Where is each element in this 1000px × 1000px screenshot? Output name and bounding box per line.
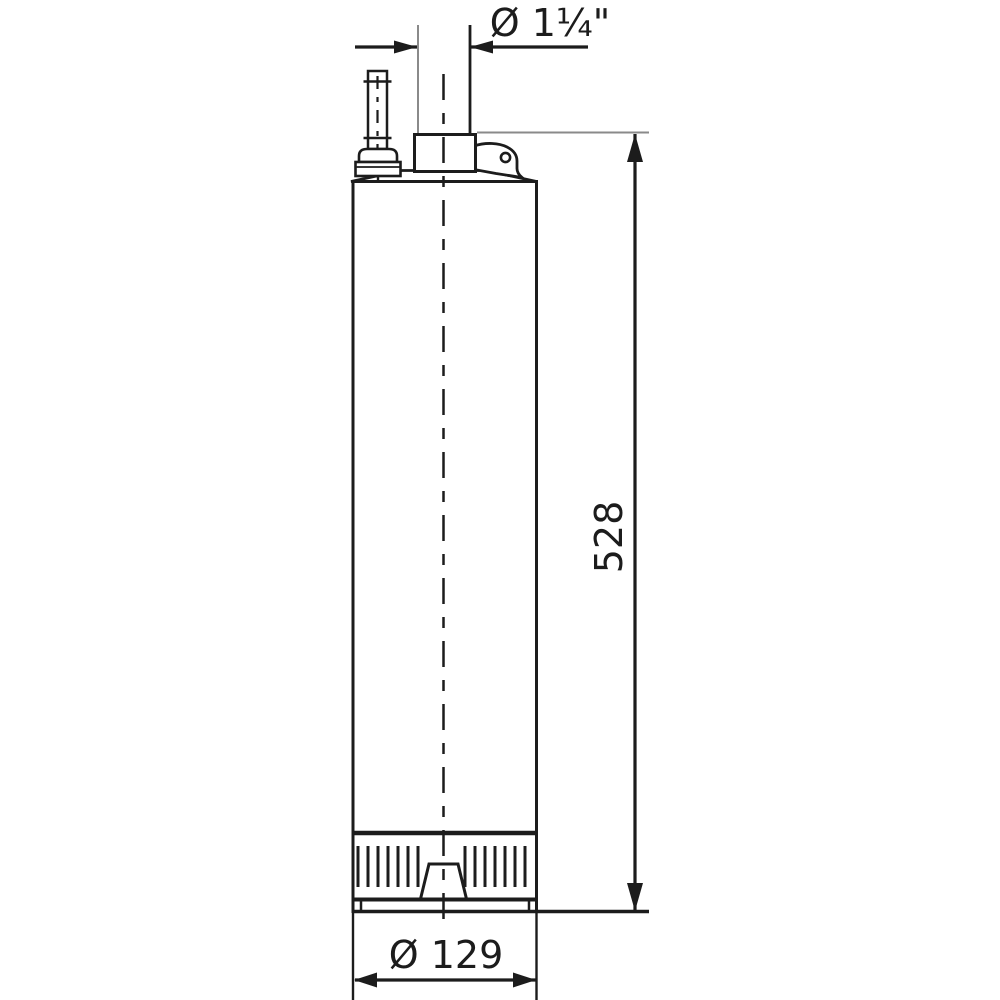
gland-band xyxy=(356,162,401,176)
arrowhead-down-icon xyxy=(627,883,643,911)
dimension-bottom-diameter: Ø 129 xyxy=(354,933,536,988)
arrowhead-left-icon xyxy=(354,973,377,988)
height-label: 528 xyxy=(587,501,631,574)
bottom-diameter-label: Ø 129 xyxy=(389,933,504,977)
pump-dimension-drawing: Ø 1¼" 528 Ø 129 xyxy=(0,0,1000,1000)
arrowhead-up-icon xyxy=(627,134,643,162)
gland-dome xyxy=(359,149,397,162)
arrowhead-right-icon xyxy=(394,41,417,54)
lug-hole xyxy=(501,153,510,162)
discharge-connection xyxy=(415,135,476,172)
arrowhead-right-icon xyxy=(513,973,536,988)
pump-outline xyxy=(351,25,649,930)
dimension-top-diameter: Ø 1¼" xyxy=(355,1,610,54)
dimension-height: 528 xyxy=(587,134,643,911)
drawing-svg: Ø 1¼" 528 Ø 129 xyxy=(0,0,1000,1000)
pump-body xyxy=(353,182,537,912)
top-diameter-label: Ø 1¼" xyxy=(490,1,610,45)
